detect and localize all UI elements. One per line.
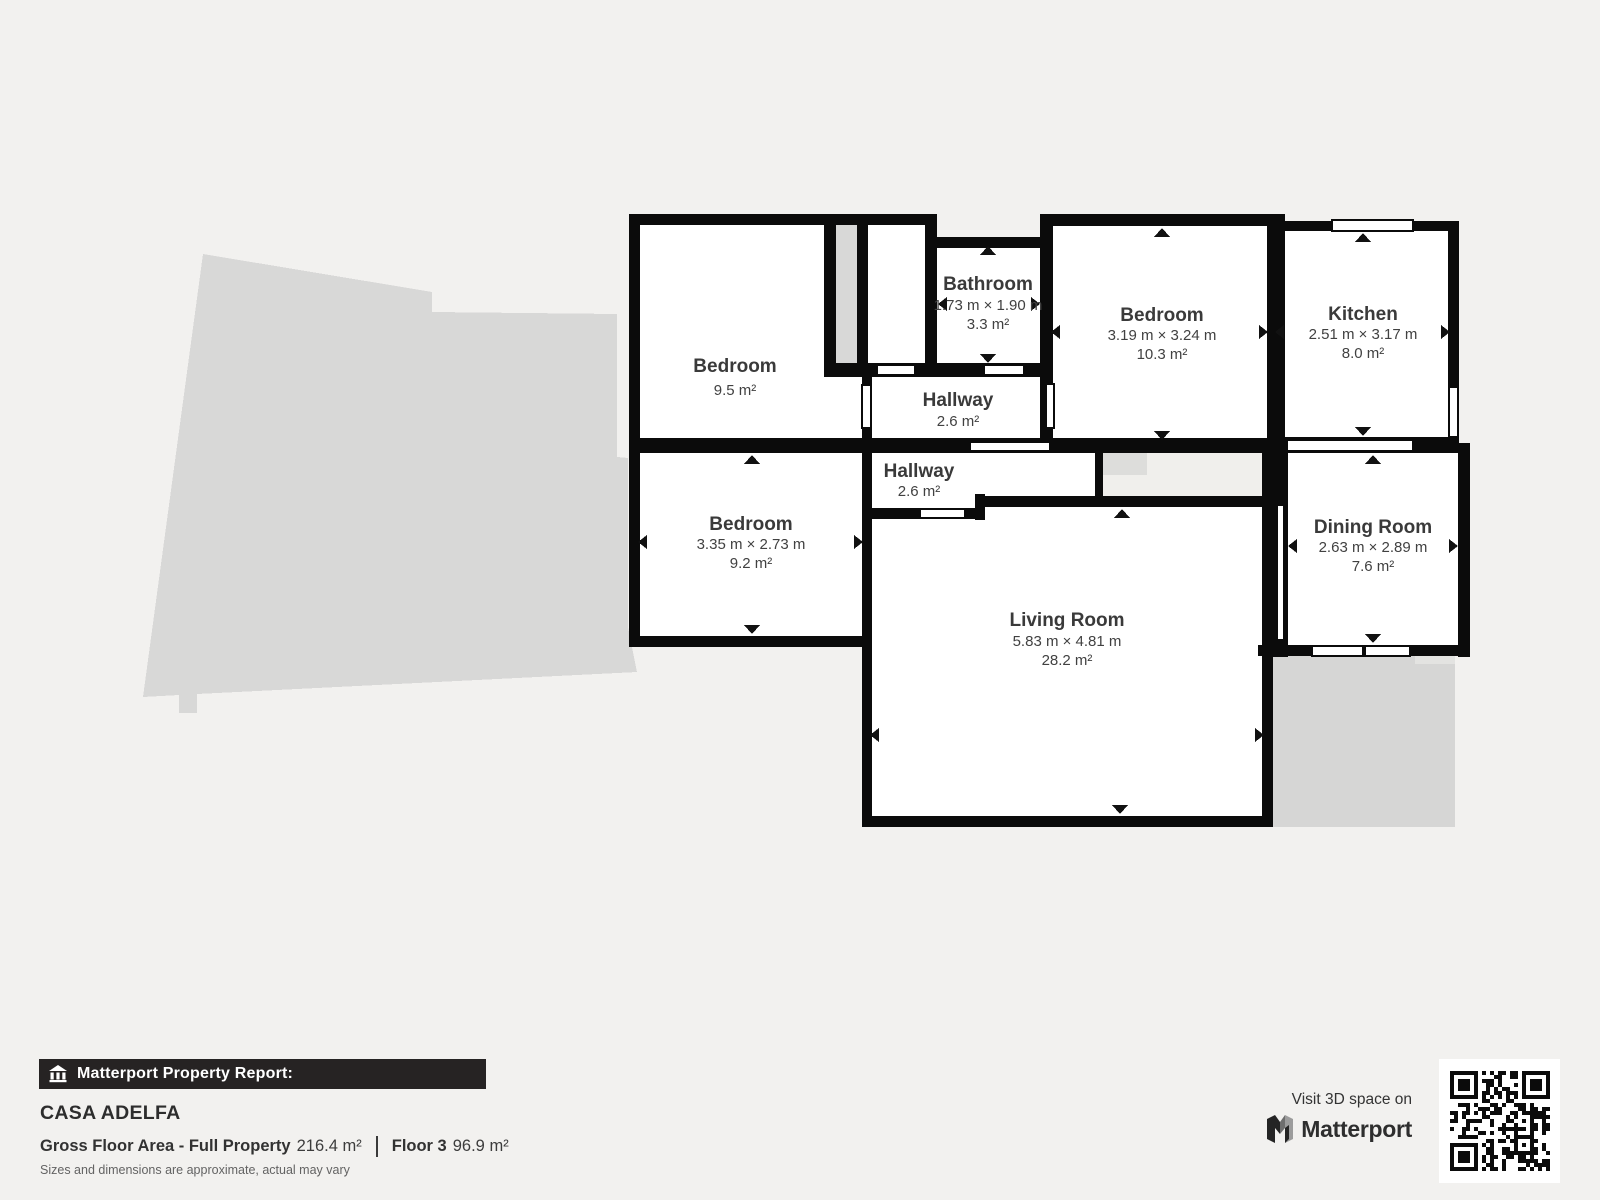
- room-area: 28.2 m²: [1042, 652, 1093, 669]
- floor-area-summary: Gross Floor Area - Full Property 216.4 m…: [40, 1136, 509, 1157]
- window-marker: [1365, 646, 1410, 656]
- room-name: Bedroom: [693, 356, 776, 377]
- window-marker: [1449, 387, 1458, 437]
- room-area: 2.6 m²: [898, 483, 941, 500]
- floor-label: Floor 3: [392, 1137, 447, 1156]
- opening-marker: [970, 442, 1050, 451]
- report-bar-label: Matterport Property Report:: [77, 1065, 293, 1083]
- window-marker: [1312, 646, 1363, 656]
- window-marker: [877, 365, 915, 375]
- room-floor-closet: [864, 220, 928, 368]
- floor-value: 96.9 m²: [453, 1137, 509, 1156]
- room-area: 7.6 m²: [1352, 558, 1395, 575]
- door-marker: [862, 385, 871, 428]
- room-name: Kitchen: [1328, 304, 1398, 325]
- window-marker: [1332, 220, 1413, 231]
- room-area: 10.3 m²: [1137, 346, 1188, 363]
- room-dims: 2.51 m × 3.17 m: [1309, 326, 1418, 343]
- room-name: Hallway: [884, 461, 955, 482]
- qr-code: [1439, 1059, 1560, 1183]
- qr-code-modules: [1450, 1071, 1550, 1171]
- room-dims: 3.19 m × 3.24 m: [1108, 327, 1217, 344]
- matterport-floorplan-report: Bedroom 9.5 m² Bathroom 1.73 m × 1.90 m …: [0, 0, 1600, 1200]
- visit-3d-text: Visit 3D space on: [1292, 1091, 1412, 1109]
- disclaimer-text: Sizes and dimensions are approximate, ac…: [40, 1163, 350, 1177]
- house-icon: [49, 1065, 67, 1083]
- room-name: Bathroom: [943, 274, 1033, 295]
- room-name: Living Room: [1009, 610, 1124, 631]
- property-name: CASA ADELFA: [40, 1102, 181, 1125]
- door-marker: [920, 509, 965, 518]
- room-dims: 1.73 m × 1.90 m: [934, 297, 1043, 314]
- room-dims: 2.63 m × 2.89 m: [1319, 539, 1428, 556]
- room-floor-alcove: [824, 377, 864, 439]
- room-area: 9.5 m²: [714, 382, 757, 399]
- gfa-value: 216.4 m²: [297, 1137, 362, 1156]
- room-dims: 3.35 m × 2.73 m: [697, 536, 806, 553]
- window-marker: [984, 365, 1024, 375]
- room-area: 9.2 m²: [730, 555, 773, 572]
- matterport-logo: Matterport: [1267, 1115, 1412, 1143]
- matterport-wordmark: Matterport: [1301, 1116, 1412, 1143]
- report-title-bar: Matterport Property Report:: [39, 1059, 486, 1089]
- door-marker: [1046, 384, 1054, 428]
- room-floor-bedroom-tl: [636, 221, 826, 443]
- room-area: 8.0 m²: [1342, 345, 1385, 362]
- room-name: Hallway: [923, 390, 994, 411]
- window-marker: [1287, 440, 1413, 451]
- room-name: Bedroom: [1120, 305, 1203, 326]
- floor-plan: Bedroom 9.5 m² Bathroom 1.73 m × 1.90 m …: [0, 0, 1600, 1200]
- room-dims: 5.83 m × 4.81 m: [1013, 633, 1122, 650]
- matterport-m-icon: [1267, 1115, 1293, 1143]
- gfa-label: Gross Floor Area - Full Property: [40, 1137, 291, 1156]
- window-marker: [1277, 505, 1284, 640]
- room-area: 2.6 m²: [937, 413, 980, 430]
- room-area: 3.3 m²: [967, 316, 1010, 333]
- room-name: Bedroom: [709, 514, 792, 535]
- room-name: Dining Room: [1314, 517, 1432, 538]
- divider: [376, 1136, 378, 1157]
